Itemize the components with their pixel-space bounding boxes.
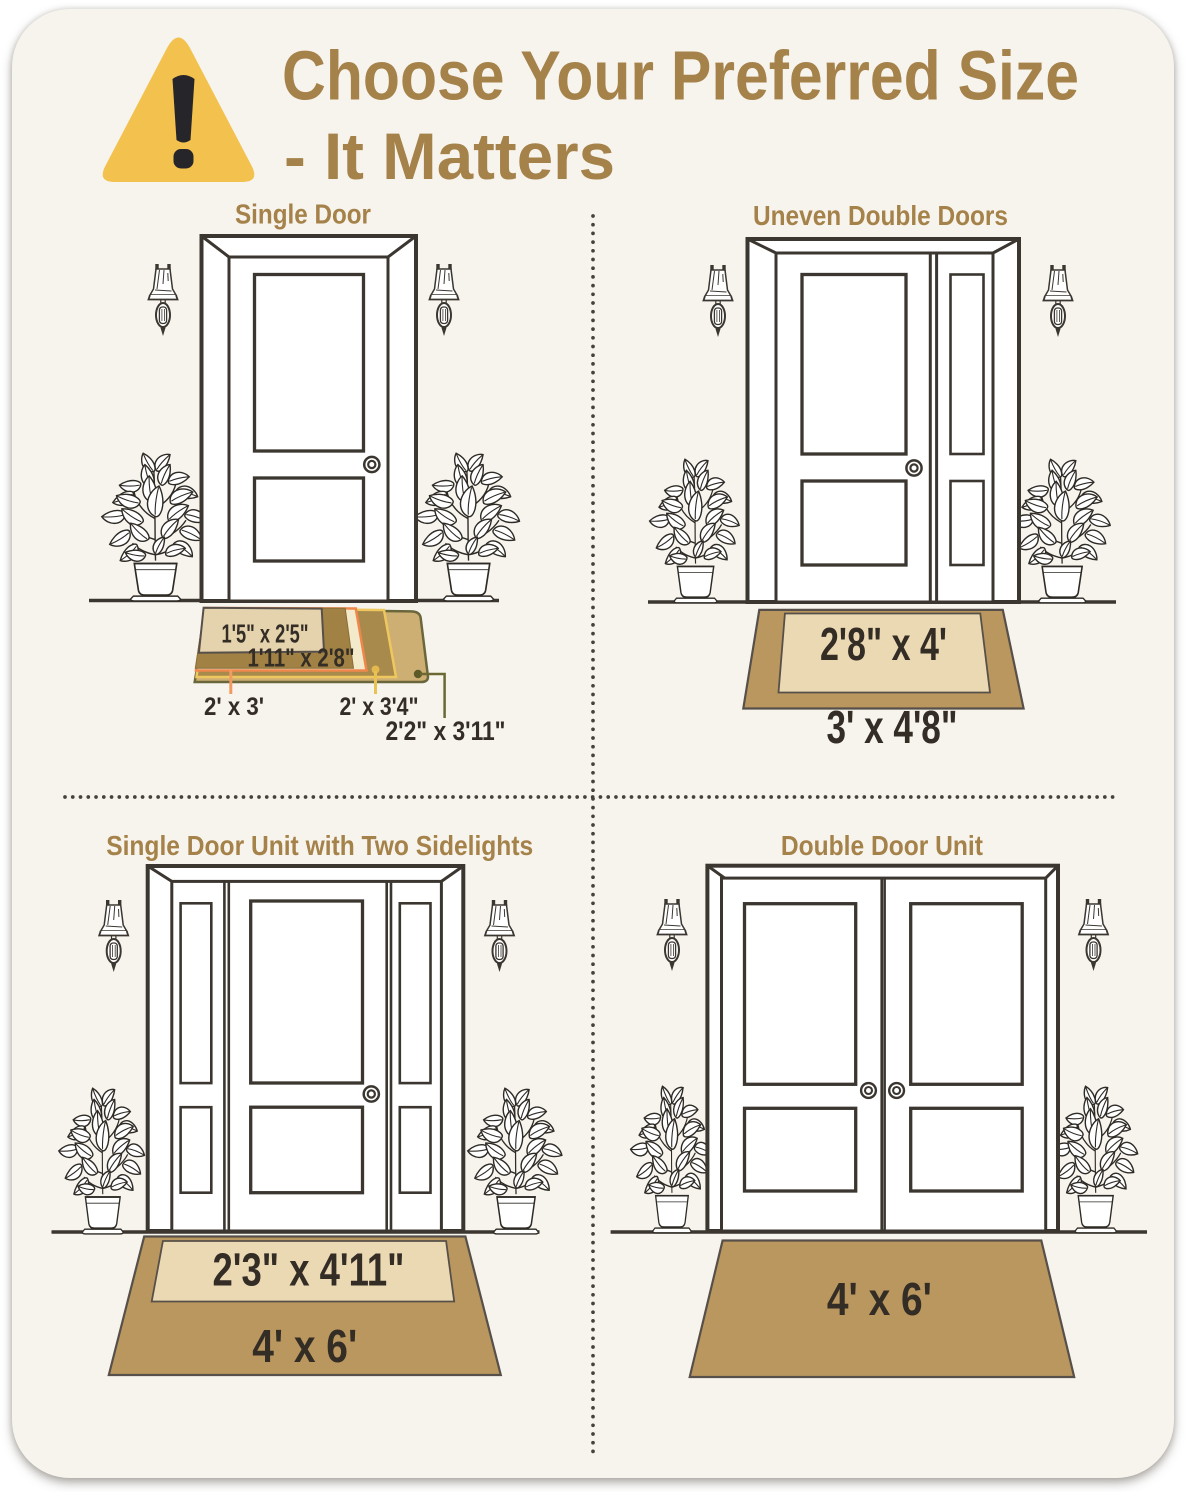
svg-text:Uneven Double Doors: Uneven Double Doors [753, 200, 1008, 231]
svg-text:2'3" x 4'11": 2'3" x 4'11" [213, 1244, 405, 1296]
svg-text:Single Door: Single Door [235, 199, 371, 230]
svg-text:Single Door Unit with Two Side: Single Door Unit with Two Sidelights [106, 830, 533, 861]
svg-text:- It Matters: - It Matters [284, 119, 615, 193]
svg-text:2'2" x 3'11": 2'2" x 3'11" [386, 716, 506, 746]
svg-text:Double Door Unit: Double Door Unit [781, 830, 983, 861]
svg-text:4' x 6': 4' x 6' [252, 1320, 357, 1372]
svg-text:Choose Your Preferred Size: Choose Your Preferred Size [282, 37, 1079, 115]
svg-text:2' x 3': 2' x 3' [204, 693, 264, 721]
svg-text:3' x 4'8": 3' x 4'8" [827, 701, 958, 753]
svg-text:2'8" x 4': 2'8" x 4' [820, 618, 947, 670]
svg-text:4' x 6': 4' x 6' [827, 1273, 932, 1325]
svg-text:1'11" x 2'8": 1'11" x 2'8" [248, 643, 355, 673]
